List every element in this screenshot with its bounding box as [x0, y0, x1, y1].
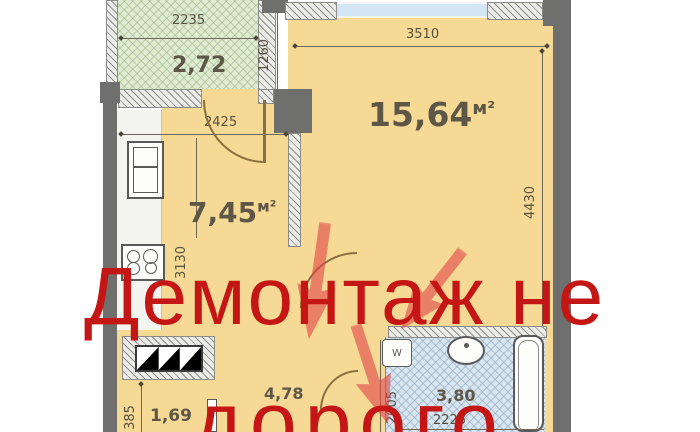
balcony-width-dim: 2235	[172, 13, 205, 28]
living-area-value: 15,64	[368, 95, 472, 134]
washing-machine-icon: W	[382, 339, 412, 367]
vent-shaft-icon	[135, 345, 203, 372]
kitchen-area-unit: м²	[257, 198, 276, 216]
kitchen-area-value: 7,45	[188, 196, 257, 229]
bathtub-icon	[513, 335, 544, 432]
washer-label: W	[392, 348, 402, 359]
hall-small-area-label: 1,69	[150, 406, 192, 426]
watermark-text-line2: дорого	[193, 380, 506, 432]
living-width-dimline	[295, 46, 547, 47]
kitchen-living-partition	[288, 133, 301, 247]
living-depth-dim: 4430	[523, 186, 538, 219]
right-wall	[553, 0, 571, 432]
watermark-text-line1: Демонтаж не	[84, 256, 605, 338]
kitchen-area-label: 7,45м²	[188, 196, 276, 229]
living-area-unit: м²	[472, 98, 495, 119]
fridge-icon	[127, 141, 164, 199]
living-top-wall-left	[285, 2, 337, 20]
balcony-area-label: 2,72	[172, 53, 226, 78]
living-width-dim: 3510	[406, 27, 439, 42]
hall-depth-dim: 385	[123, 405, 138, 430]
balcony-width-dimline	[121, 38, 256, 39]
living-top-wall-right	[487, 2, 543, 20]
hall-depth-dimline	[141, 384, 142, 432]
balcony-left-wall	[106, 0, 118, 90]
floor-plan: 2235 1260 2,72 3510 4430 15,64м² 2425 31…	[0, 0, 700, 432]
balcony-depth-dim: 1260	[257, 39, 272, 72]
balcony-bottom-wall	[118, 89, 202, 108]
center-pillar	[274, 89, 312, 133]
balcony-depth-dimline	[277, 10, 278, 90]
living-area-label: 15,64м²	[368, 95, 495, 134]
